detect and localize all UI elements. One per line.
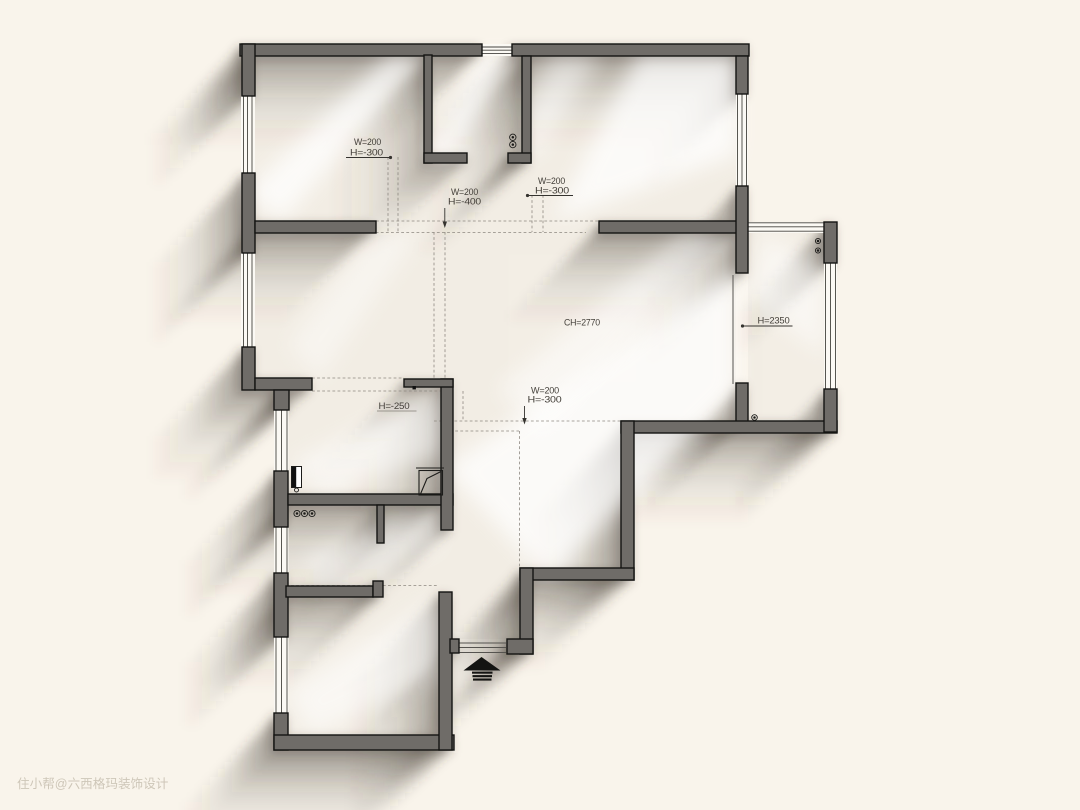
svg-text:W=200: W=200 [354, 137, 381, 148]
svg-text:住小帮@六西格玛装饰设计: 住小帮@六西格玛装饰设计 [17, 776, 169, 791]
svg-text:H=-250: H=-250 [379, 401, 410, 412]
svg-text:H=-300: H=-300 [535, 186, 569, 197]
svg-text:CH=2770: CH=2770 [564, 318, 600, 329]
svg-text:H=-400: H=-400 [448, 197, 481, 208]
svg-text:H=2350: H=2350 [758, 316, 790, 327]
svg-text:H=-300: H=-300 [350, 148, 383, 159]
svg-text:H=-300: H=-300 [528, 395, 562, 406]
